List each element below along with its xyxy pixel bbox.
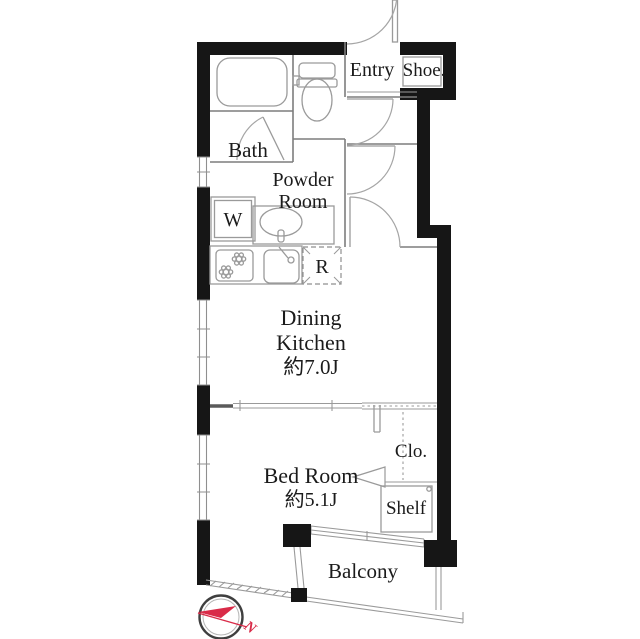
shelf-label: Shelf	[386, 498, 427, 519]
entry-door	[347, 0, 398, 44]
balcony-label: Balcony	[328, 559, 398, 583]
powder-room-label-line2: Room	[279, 191, 328, 213]
washing-machine-label: W	[224, 209, 243, 231]
balcony-sliding-window	[311, 526, 424, 547]
floorplan-canvas: Bath Entry Shoe. Powder Room W R Dining …	[0, 0, 640, 639]
room-partition	[210, 400, 437, 432]
dining-kitchen-label-line2: Kitchen	[276, 330, 346, 355]
hallway-door-middle	[347, 146, 395, 194]
closet-front	[362, 403, 437, 409]
refrigerator-label: R	[315, 256, 329, 278]
north-arrow-icon	[198, 606, 236, 618]
compass: N	[198, 596, 260, 639]
sliding-partition	[233, 400, 362, 411]
powder-room-label-line1: Powder	[272, 169, 333, 191]
hallway-door-upper	[347, 99, 393, 145]
bathtub	[217, 58, 287, 106]
entry-label: Entry	[350, 59, 394, 81]
bed-room-label: Bed Room	[264, 463, 359, 488]
closet-label: Clo.	[395, 441, 427, 462]
dining-kitchen-area: 約7.0J	[283, 355, 338, 379]
stove	[216, 250, 253, 281]
dining-kitchen-label-line1: Dining	[280, 305, 341, 330]
shoe-box-label: Shoe.	[403, 60, 446, 81]
kitchen-sink	[264, 247, 299, 283]
balcony-side-wall	[294, 547, 304, 588]
floorplan-drawing: Bath Entry Shoe. Powder Room W R Dining …	[0, 0, 640, 639]
bath-label: Bath	[228, 138, 268, 162]
hallway-door-lower	[350, 197, 400, 247]
bed-room-area: 約5.1J	[285, 488, 338, 511]
toilet	[293, 63, 337, 121]
